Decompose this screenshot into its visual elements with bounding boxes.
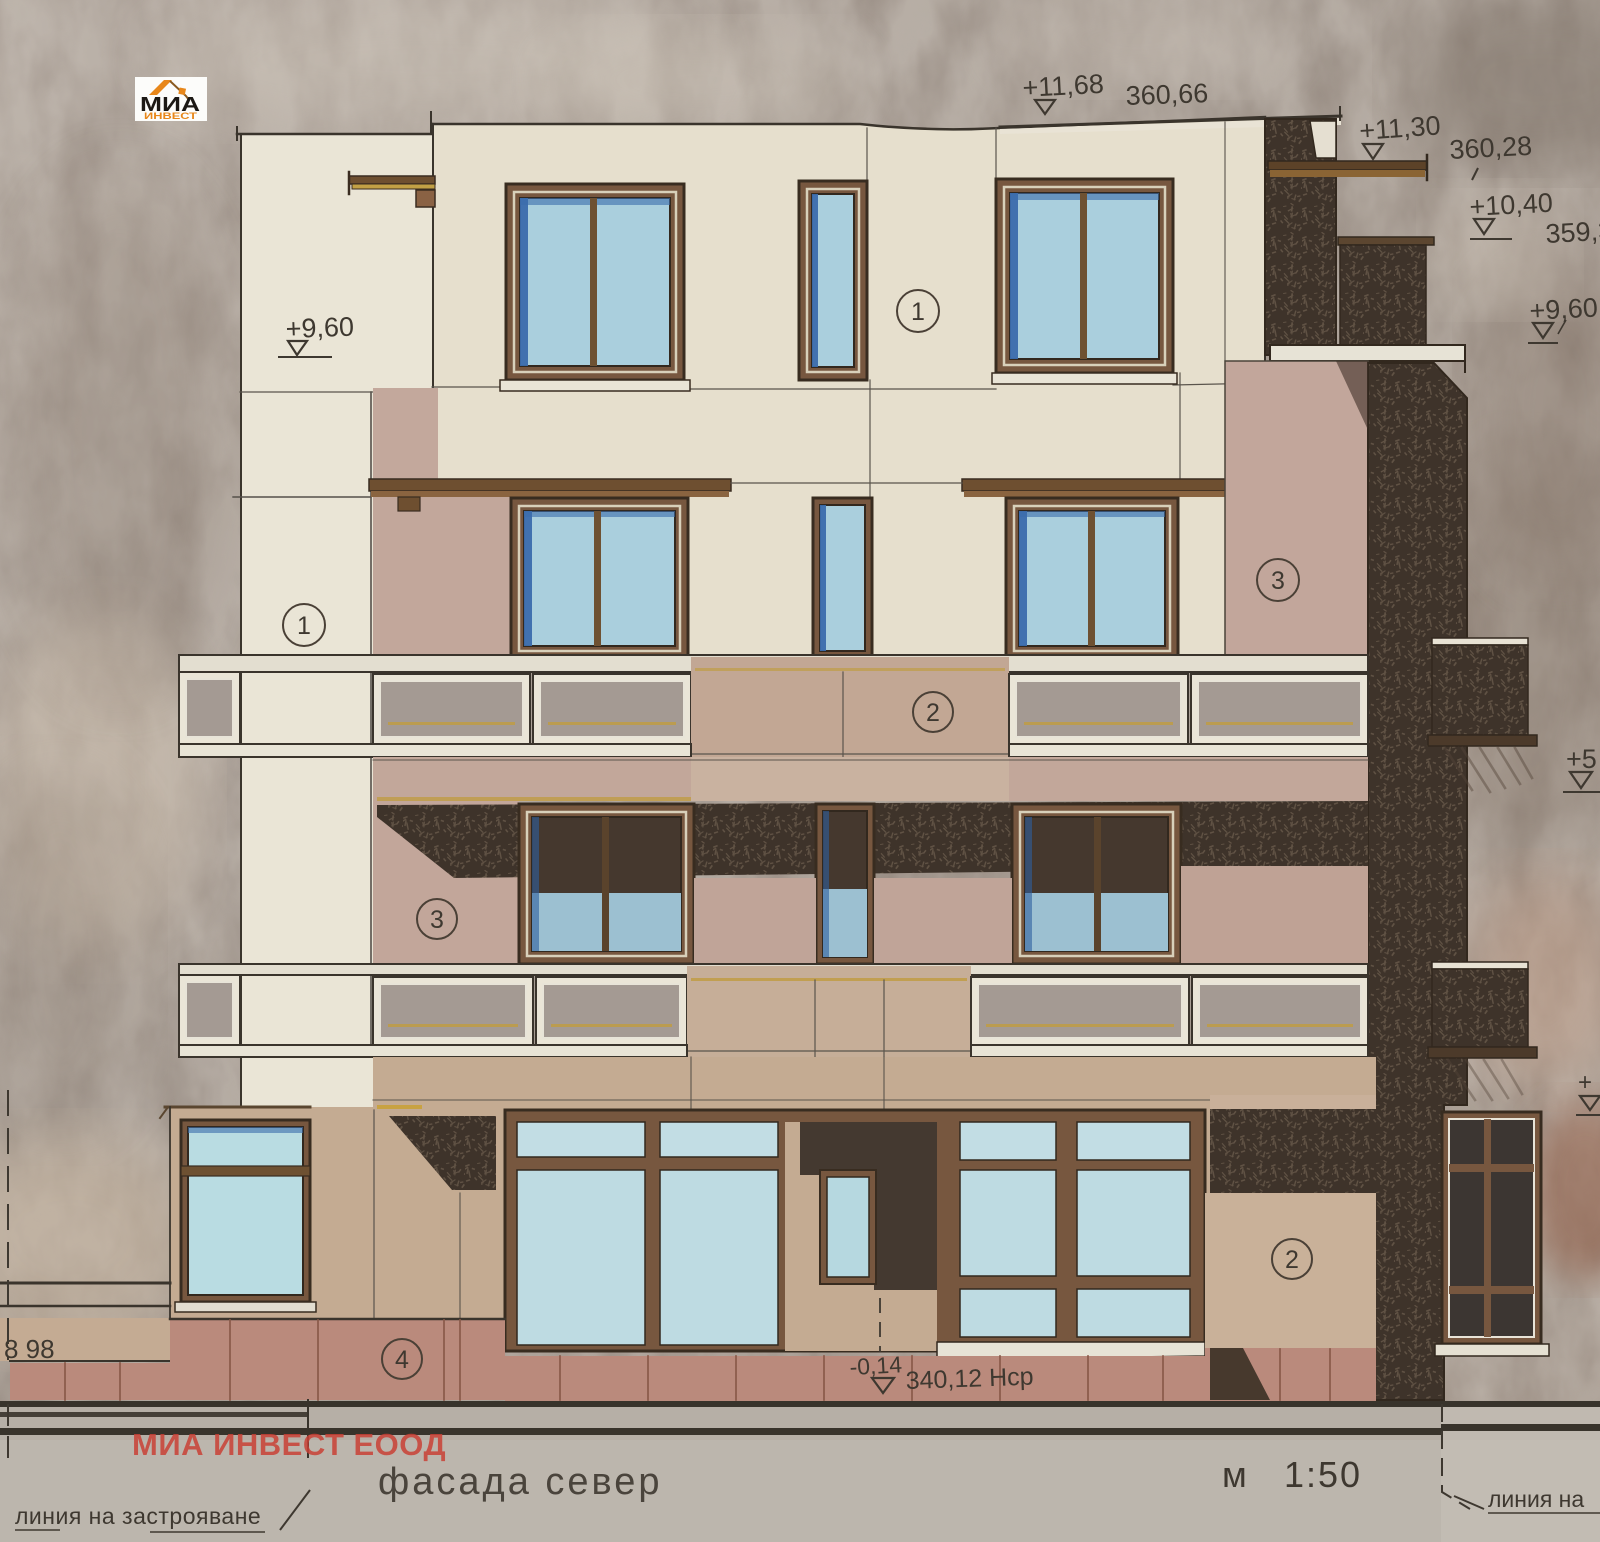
- svg-text:1:50: 1:50: [1284, 1454, 1362, 1495]
- svg-text:359,3: 359,3: [1545, 215, 1600, 248]
- svg-text:+11,30: +11,30: [1358, 110, 1441, 146]
- svg-text:1: 1: [297, 612, 311, 640]
- svg-text:МИА ИНВЕСТ ЕООД: МИА ИНВЕСТ ЕООД: [132, 1427, 446, 1462]
- svg-text:м: м: [1222, 1454, 1247, 1495]
- svg-text:3: 3: [430, 906, 444, 934]
- svg-text:+11,68: +11,68: [1022, 69, 1105, 103]
- svg-text:+5: +5: [1566, 744, 1597, 774]
- svg-text:-0,14: -0,14: [849, 1351, 903, 1380]
- svg-text:2: 2: [926, 699, 940, 727]
- svg-text:340,12 Нср: 340,12 Нср: [905, 1363, 1034, 1395]
- svg-text:3: 3: [1271, 567, 1285, 595]
- svg-text:1: 1: [911, 298, 925, 326]
- svg-text:линия на: линия на: [1488, 1486, 1584, 1512]
- svg-text:фасада север: фасада север: [378, 1461, 663, 1503]
- svg-text:+10,40: +10,40: [1469, 188, 1554, 222]
- svg-text:8 98: 8 98: [4, 1334, 55, 1364]
- svg-text:+9,60: +9,60: [1529, 292, 1599, 326]
- svg-text:линия на застрояване: линия на застрояване: [15, 1503, 261, 1529]
- svg-text:2: 2: [1285, 1246, 1299, 1274]
- svg-text:ИНВЕСТ: ИНВЕСТ: [144, 111, 197, 122]
- svg-text:360,28: 360,28: [1449, 131, 1533, 165]
- svg-text:360,66: 360,66: [1125, 78, 1209, 111]
- svg-text:+: +: [1578, 1069, 1592, 1096]
- svg-text:+9,60: +9,60: [285, 312, 354, 344]
- svg-text:4: 4: [395, 1346, 409, 1374]
